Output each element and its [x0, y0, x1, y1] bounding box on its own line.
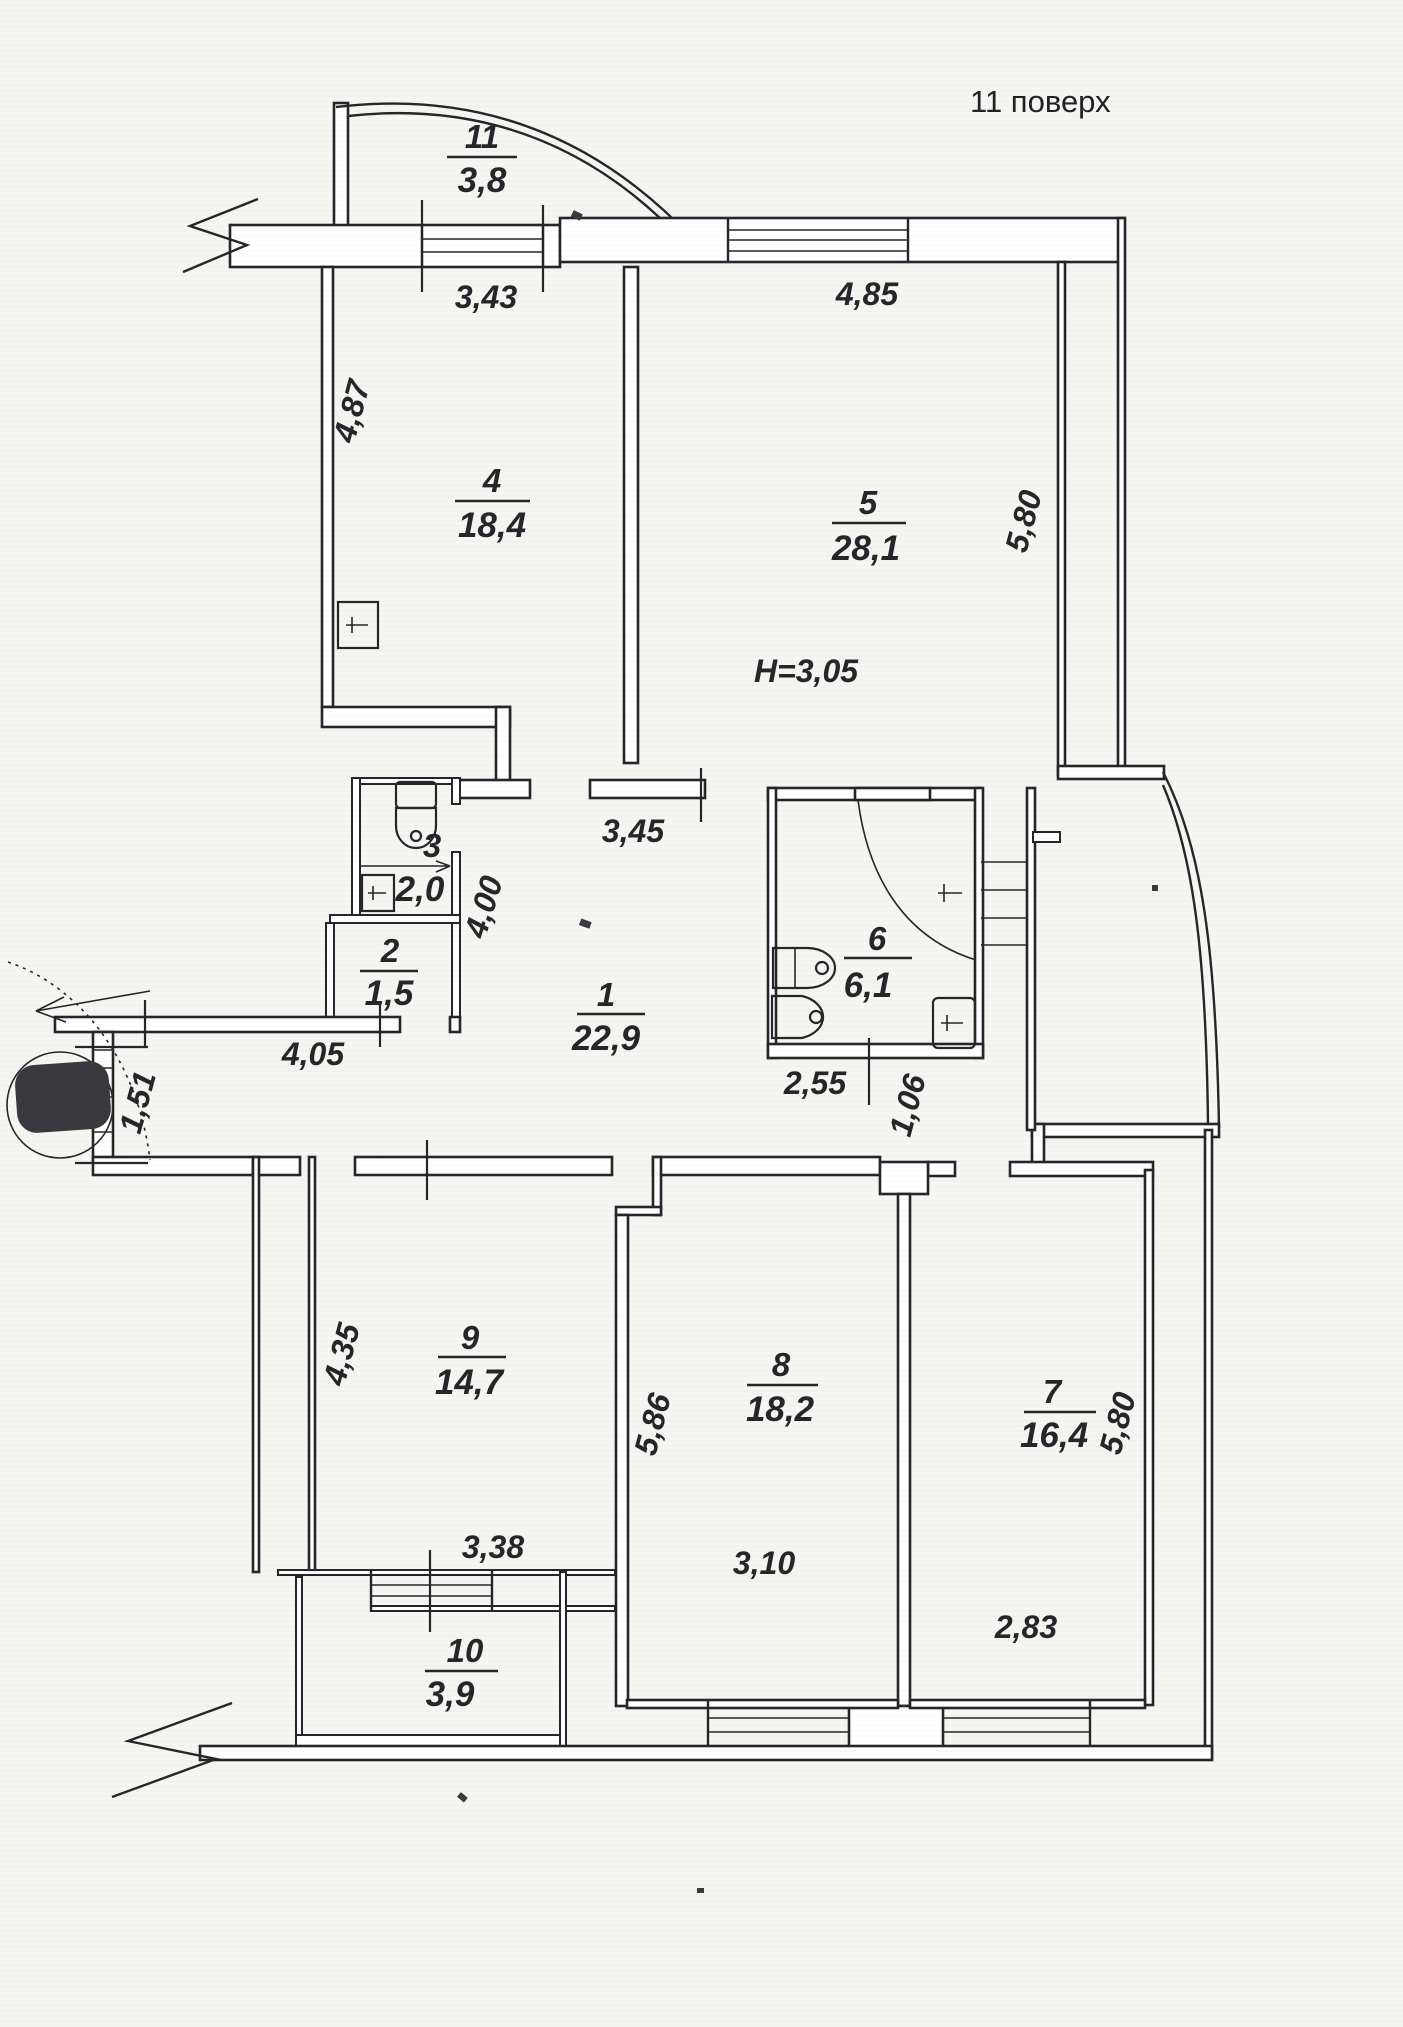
bay-curved-wall-inner — [1163, 785, 1208, 1124]
room1-area: 22,9 — [571, 1019, 641, 1058]
dim-room9-width: 3,38 — [462, 1529, 524, 1565]
room7-bottom-interior — [910, 1700, 1145, 1708]
radiator-mark — [346, 617, 368, 633]
room4-step-wall — [496, 707, 510, 783]
toilet-tank — [396, 782, 436, 808]
room2-left-wall — [326, 923, 334, 1023]
right-exterior-walls — [1032, 218, 1219, 1758]
stamp-blob — [14, 1060, 113, 1134]
room8-number: 8 — [772, 1346, 791, 1383]
top-exterior-walls — [230, 218, 1124, 267]
room1-number: 1 — [597, 976, 615, 1013]
room8-room7-divider — [898, 1194, 910, 1706]
dim-hall-depth: 4,00 — [457, 872, 510, 943]
dim-room8-width: 3,10 — [733, 1545, 795, 1581]
room5-number: 5 — [859, 484, 878, 521]
right-wall-lower-outer — [1205, 1130, 1212, 1758]
bay-bottom-wall — [1032, 1124, 1219, 1137]
hall-top-wall — [457, 768, 705, 822]
balcony10-left-wall — [296, 1577, 302, 1753]
scan-speck — [457, 1792, 468, 1802]
room3-room2-divider — [330, 915, 460, 923]
room4-room5-divider — [624, 267, 638, 763]
corridor-top-wall-stub — [450, 1017, 460, 1032]
corridor-top-wall — [55, 1017, 400, 1032]
floorplan-drawing: 11 поверх 11 3,8 4 18,4 5 28,1 3 2,0 2 1… — [0, 0, 1403, 2027]
room10-area: 3,9 — [426, 1675, 475, 1714]
lower-rooms-partitions — [253, 1157, 1153, 1756]
room9-area: 14,7 — [435, 1363, 505, 1402]
balcony-left-wall — [334, 103, 348, 243]
dim-ceiling-height: H=3,05 — [754, 653, 859, 689]
room3-number: 3 — [423, 827, 441, 864]
room2-area: 1,5 — [365, 974, 414, 1013]
toilet-drain — [411, 831, 421, 841]
room3-right-wall-seg — [452, 852, 460, 1023]
dim-room5-width: 4,85 — [835, 276, 899, 312]
room9-room8-divider — [616, 1215, 628, 1706]
wall-band-room4-top — [230, 225, 560, 267]
dim-room7-width: 2,83 — [994, 1609, 1057, 1645]
corridor-bottom-wall-seg — [653, 1157, 880, 1175]
dim-room7-depth: 5,80 — [1092, 1388, 1143, 1458]
room11-number: 11 — [465, 118, 499, 155]
room10-number: 10 — [447, 1632, 484, 1669]
room4-area: 18,4 — [458, 506, 526, 545]
room7-top-wall-seg — [1010, 1162, 1153, 1176]
room6-number: 6 — [868, 920, 887, 957]
floorplan-scan-page: 11 поверх 11 3,8 4 18,4 5 28,1 3 2,0 2 1… — [0, 0, 1403, 2027]
room8-area: 18,2 — [746, 1390, 815, 1429]
room3-area: 2,0 — [395, 870, 445, 909]
room8-bottom-interior — [627, 1700, 898, 1708]
sink-mark — [368, 886, 386, 900]
room3-right-wall-seg — [452, 778, 460, 804]
scan-speck — [697, 1888, 704, 1893]
right-wall-outer — [1118, 218, 1125, 778]
washbasin-drain — [816, 962, 828, 974]
dim-hall-top: 3,45 — [602, 813, 665, 849]
dim-room6-width: 2,55 — [783, 1065, 847, 1101]
right-wall-inner — [1058, 262, 1065, 775]
boiler-mark — [941, 1015, 963, 1031]
room11-area: 3,8 — [458, 161, 507, 200]
balcony10-right-wall — [560, 1572, 566, 1752]
corridor-bottom-wall-seg — [355, 1157, 612, 1175]
room6-right-wall — [975, 788, 983, 1058]
page-title: 11 поверх — [970, 84, 1111, 119]
dim-room4-width: 3,43 — [455, 279, 517, 315]
hall-top-wall-seg — [590, 780, 705, 798]
room3-left-wall — [352, 778, 360, 918]
washbasin-room6 — [773, 948, 835, 988]
bay-top-wall — [1058, 766, 1164, 779]
bidet-room6 — [772, 996, 823, 1038]
bottom-walls-and-windows — [200, 1570, 1212, 1760]
bidet-drain — [810, 1011, 822, 1023]
scan-speck — [579, 918, 592, 928]
room4-number: 4 — [482, 462, 501, 499]
room4-left-wall — [322, 267, 333, 707]
dim-room5-depth: 5,80 — [998, 486, 1049, 556]
room7-number: 7 — [1043, 1373, 1063, 1410]
dim-shaft: 1,06 — [882, 1070, 933, 1140]
room8-room7-divider-head — [880, 1162, 928, 1194]
hall-top-wall-seg — [457, 780, 530, 798]
room9-left-wall-inner — [309, 1157, 315, 1572]
bottom-exterior-wall — [200, 1746, 1212, 1760]
room9-left-wall-outer — [253, 1157, 259, 1572]
room5-area: 28,1 — [831, 529, 900, 568]
dim-room9-depth: 4,35 — [316, 1318, 367, 1390]
dim-room8-depth: 5,86 — [627, 1389, 678, 1459]
room7-area: 16,4 — [1020, 1416, 1088, 1455]
corridor-bottom-wall-seg — [93, 1157, 253, 1175]
room7-top-wall-seg — [928, 1162, 955, 1176]
break-symbols — [112, 199, 258, 1797]
bay-niche-wall — [1033, 832, 1060, 842]
room6-door-gap — [855, 788, 930, 800]
page-title-group: 11 поверх — [970, 84, 1111, 119]
room7-right-wall — [1145, 1170, 1153, 1705]
room6-bottom-wall — [768, 1044, 983, 1058]
bay-curved-wall-outer — [1163, 772, 1219, 1128]
room2-number: 2 — [380, 932, 400, 969]
room9-number: 9 — [461, 1319, 480, 1356]
dim-entry: 1,51 — [112, 1067, 163, 1136]
scan-speck — [1152, 885, 1158, 891]
room4-bottom-wall — [322, 707, 510, 727]
vent-riser-mark — [938, 884, 962, 902]
dim-corridor: 4,05 — [281, 1036, 345, 1072]
room6-area: 6,1 — [844, 966, 893, 1005]
